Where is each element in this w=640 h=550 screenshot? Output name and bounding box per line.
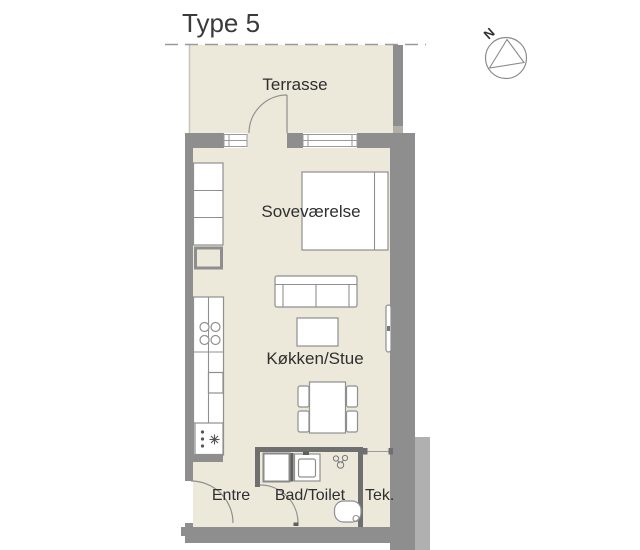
tech-shaft-box — [196, 248, 222, 268]
tech-door-stop-right — [389, 448, 394, 455]
tech-door-stop-left — [363, 448, 368, 455]
terrace-wall-joint — [393, 126, 403, 133]
washbasin-bowl — [299, 459, 316, 477]
wall-bottom — [187, 527, 415, 543]
washer-dot — [201, 444, 204, 447]
window-left — [224, 135, 247, 147]
cooktop-burner — [200, 323, 209, 332]
washer-dot — [201, 430, 204, 433]
cooktop-burner — [200, 336, 209, 345]
north-compass: N — [481, 25, 527, 79]
kitchen-fixtures — [194, 297, 224, 455]
dining-table — [310, 382, 346, 433]
page-title: Type 5 — [182, 8, 260, 38]
entry-label: Entre — [212, 487, 250, 504]
shower-partition — [291, 453, 294, 482]
wall-bottom-step — [181, 527, 187, 536]
toilet — [335, 501, 362, 522]
radiator-valve — [387, 326, 390, 331]
washbasin-tap — [303, 452, 309, 456]
north-label: N — [481, 25, 498, 42]
kitchen-sink — [209, 373, 224, 394]
wall-right-extension — [415, 437, 430, 550]
cooktop-burner — [211, 323, 220, 332]
terrace-right-wall — [393, 45, 403, 128]
cooktop-burner — [211, 336, 220, 345]
dining-chair — [298, 411, 309, 432]
wardrobe — [194, 163, 224, 245]
kitchen-living-label: Køkken/Stue — [266, 349, 363, 368]
terrace-label: Terrasse — [262, 75, 327, 94]
wall-top-right — [357, 133, 390, 148]
compass-needle — [490, 40, 525, 69]
dining-chair — [347, 386, 358, 407]
bathroom-label: Bad/Toilet — [275, 487, 346, 504]
washer-star-symbol — [210, 435, 220, 445]
dining-chair — [298, 386, 309, 407]
bathroom-wall-left — [255, 447, 260, 487]
dining-chair — [347, 411, 358, 432]
door-stop — [294, 523, 299, 527]
bedroom-label: Soveværelse — [261, 202, 360, 221]
floor-plan-page: N Type 5 Terrasse Soveværelse Køkken/Stu… — [0, 0, 640, 550]
wall-left — [185, 133, 193, 481]
wall-top-pillar — [287, 133, 303, 148]
floor-plan-drawing: N Type 5 Terrasse Soveværelse Køkken/Stu… — [0, 0, 640, 550]
terrace-door-opening — [247, 133, 287, 148]
window-right — [303, 135, 357, 147]
bathroom-wall-top — [255, 447, 363, 452]
washer-dot — [201, 437, 204, 440]
shower — [264, 454, 290, 482]
washing-machine — [195, 423, 223, 455]
coffee-table — [297, 318, 338, 346]
tech-label: Tek. — [365, 487, 394, 504]
